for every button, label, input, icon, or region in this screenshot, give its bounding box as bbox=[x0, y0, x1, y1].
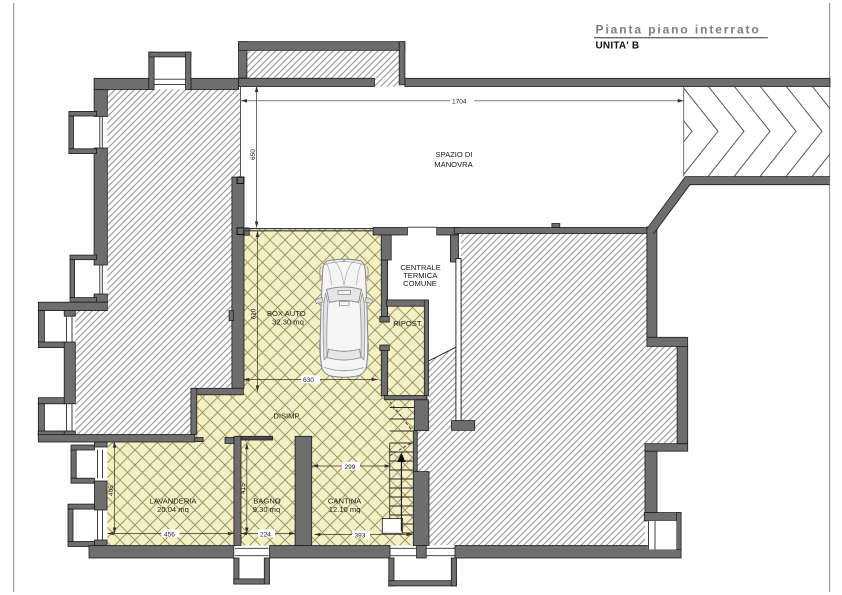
svg-text:12.10 mq: 12.10 mq bbox=[329, 505, 361, 514]
svg-text:405: 405 bbox=[108, 485, 115, 496]
svg-text:DISIMP.: DISIMP. bbox=[273, 411, 300, 420]
svg-text:456: 456 bbox=[164, 531, 175, 538]
svg-text:224: 224 bbox=[260, 531, 271, 538]
svg-text:415: 415 bbox=[240, 483, 247, 494]
svg-text:COMUNE: COMUNE bbox=[403, 279, 437, 288]
svg-text:BOX AUTO: BOX AUTO bbox=[267, 309, 306, 318]
svg-text:MANOVRA: MANOVRA bbox=[434, 160, 473, 169]
svg-text:32.30 mq: 32.30 mq bbox=[272, 318, 304, 327]
svg-text:UNITA' B: UNITA' B bbox=[596, 41, 640, 52]
svg-text:299: 299 bbox=[345, 464, 356, 471]
svg-text:Pianta piano interrato: Pianta piano interrato bbox=[596, 23, 761, 37]
svg-text:610: 610 bbox=[251, 308, 258, 319]
svg-text:RIPOST.: RIPOST. bbox=[393, 319, 423, 328]
svg-text:1704: 1704 bbox=[452, 98, 467, 105]
svg-text:20.04 mq: 20.04 mq bbox=[157, 505, 189, 514]
svg-text:630: 630 bbox=[303, 377, 314, 384]
svg-text:9.30 mq: 9.30 mq bbox=[253, 505, 280, 514]
svg-text:SPAZIO DI: SPAZIO DI bbox=[436, 150, 473, 159]
svg-text:650: 650 bbox=[250, 149, 257, 160]
svg-text:393: 393 bbox=[355, 532, 366, 539]
